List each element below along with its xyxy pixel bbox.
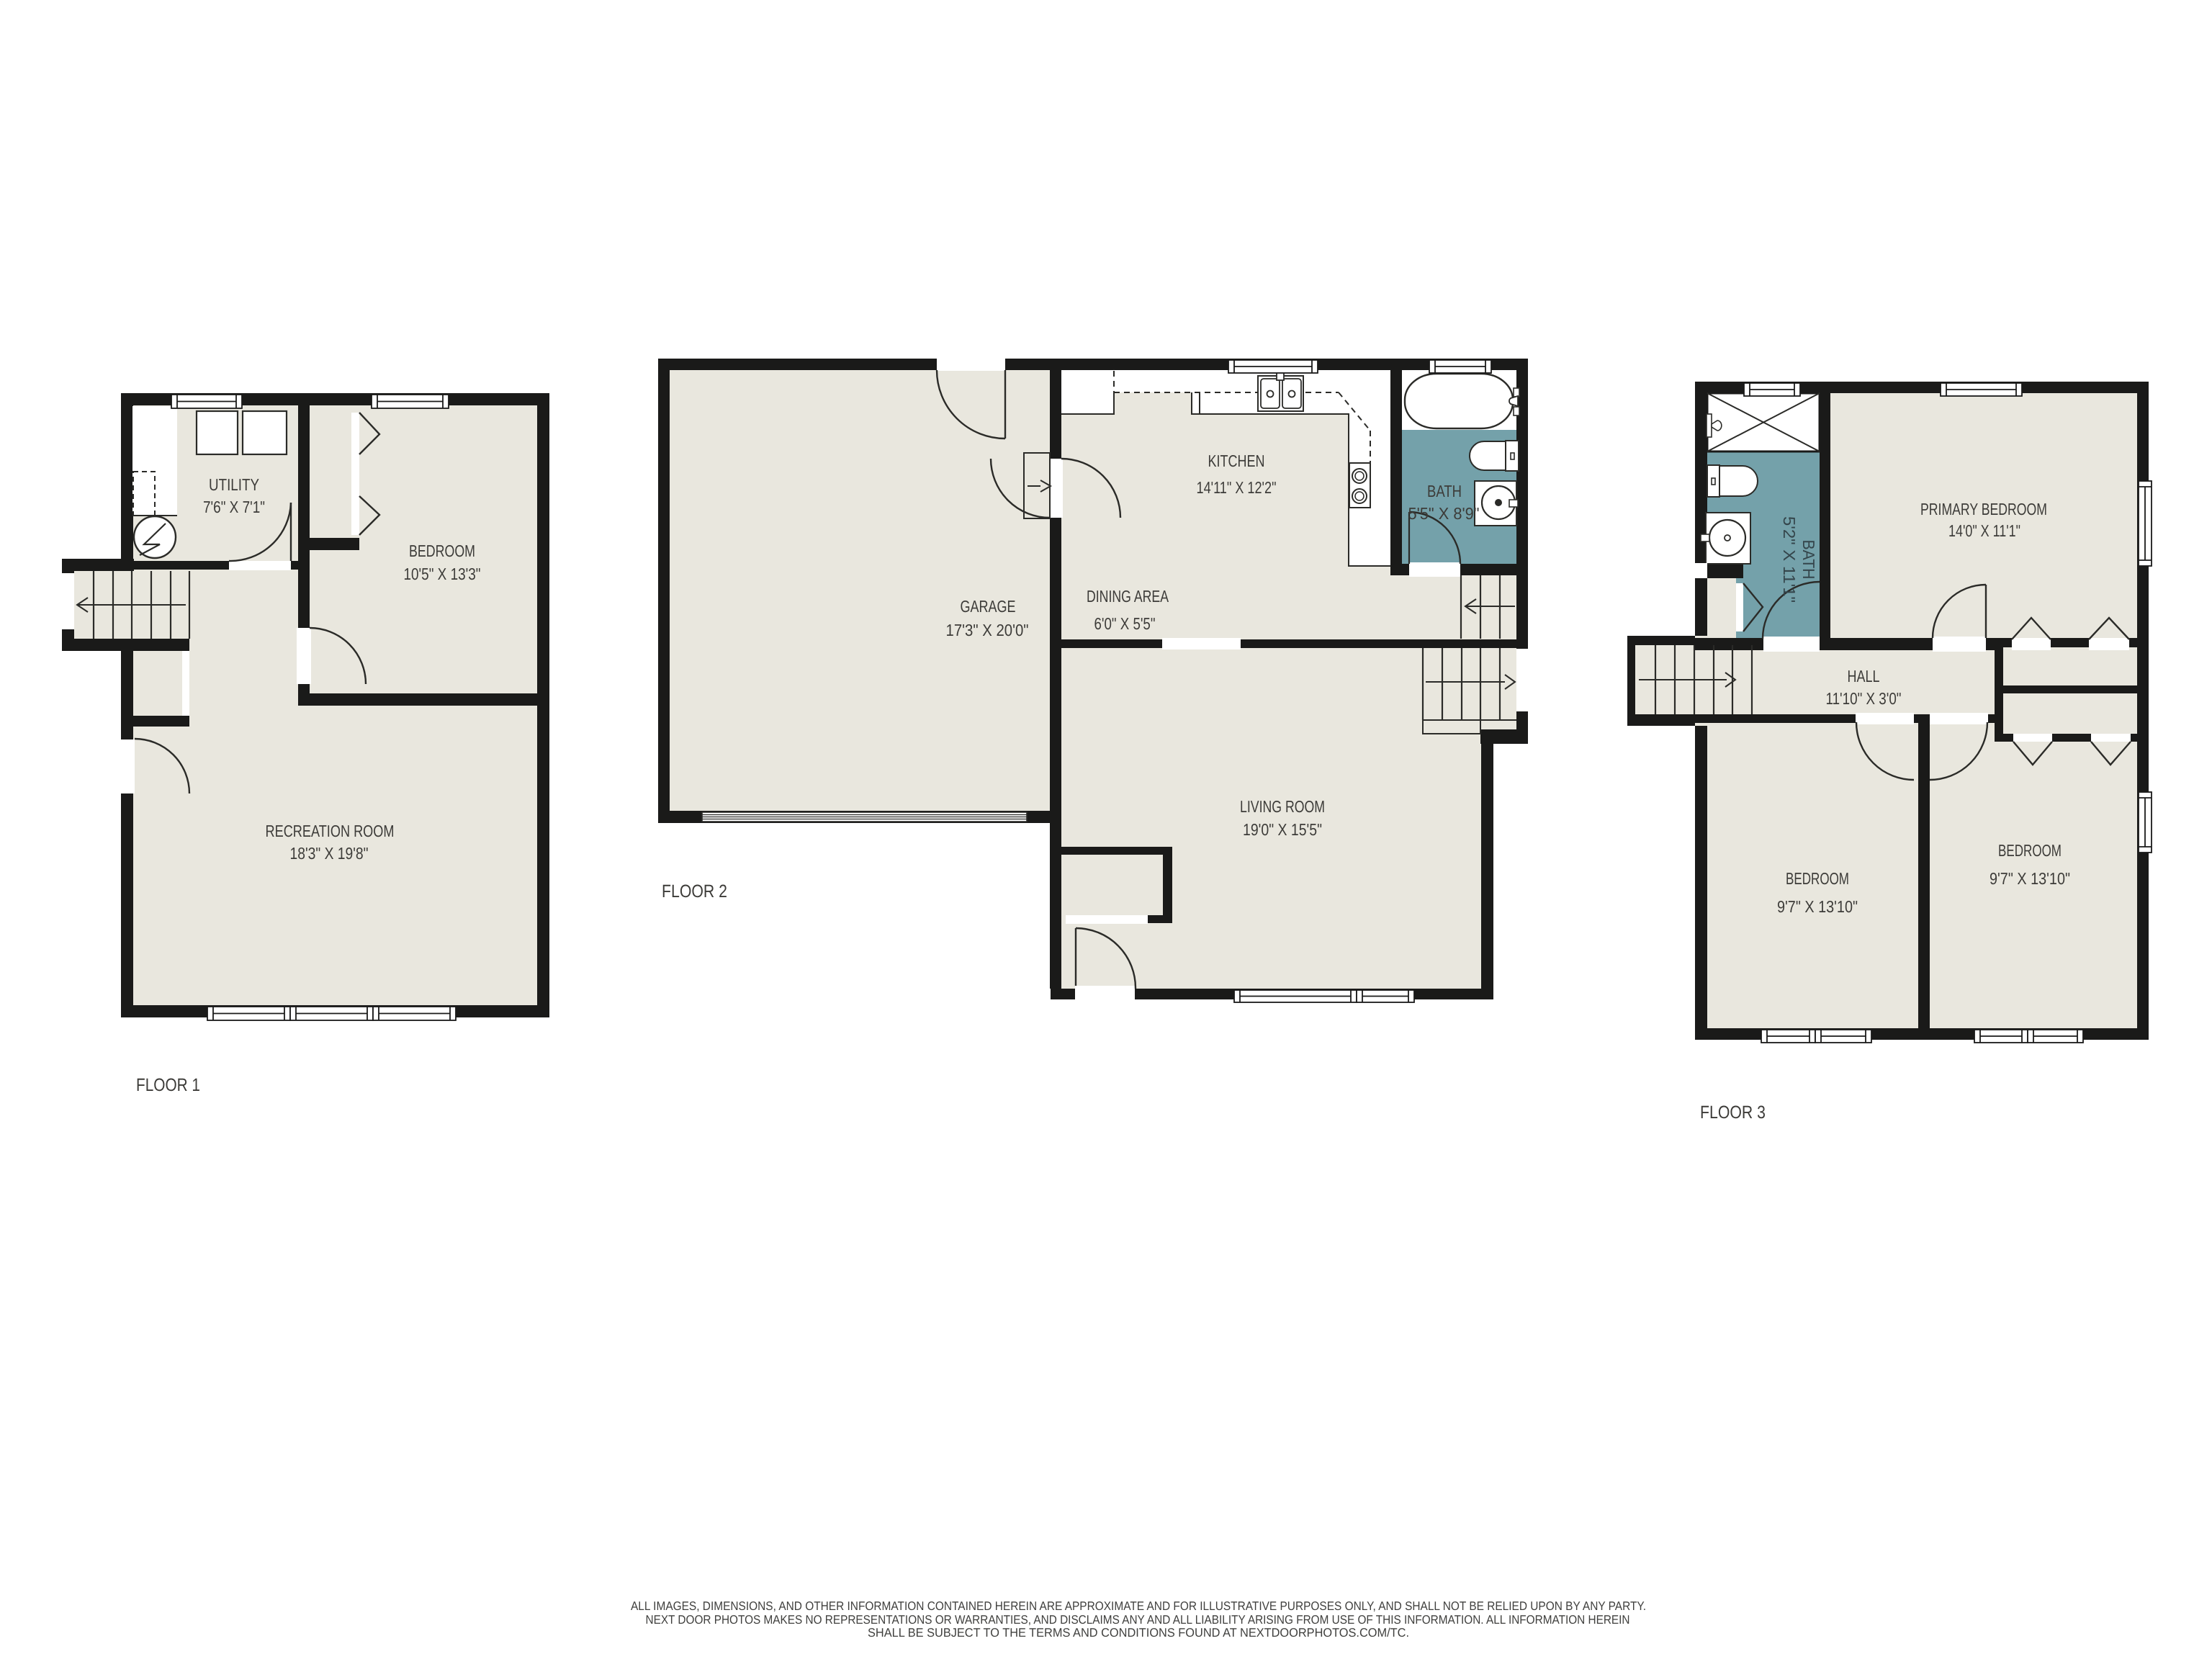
svg-text:BATH: BATH bbox=[1427, 482, 1462, 500]
svg-text:14'0" X 11'1": 14'0" X 11'1" bbox=[1948, 521, 2020, 540]
svg-text:GARAGE: GARAGE bbox=[961, 597, 1016, 616]
svg-text:BATH: BATH bbox=[1799, 540, 1818, 580]
svg-text:BEDROOM: BEDROOM bbox=[409, 541, 475, 560]
svg-text:19'0" X 15'5": 19'0" X 15'5" bbox=[1243, 820, 1322, 839]
svg-text:FLOOR 3: FLOOR 3 bbox=[1700, 1102, 1766, 1123]
svg-text:ALL IMAGES, DIMENSIONS, AND OT: ALL IMAGES, DIMENSIONS, AND OTHER INFORM… bbox=[631, 1599, 1646, 1613]
svg-text:6'0" X 5'5": 6'0" X 5'5" bbox=[1094, 614, 1156, 633]
svg-text:UTILITY: UTILITY bbox=[209, 475, 259, 494]
svg-text:9'7" X 13'10": 9'7" X 13'10" bbox=[1990, 869, 2070, 888]
svg-text:17'3" X 20'0": 17'3" X 20'0" bbox=[946, 621, 1029, 639]
svg-text:FLOOR 1: FLOOR 1 bbox=[136, 1075, 200, 1095]
svg-text:7'6" X 7'1": 7'6" X 7'1" bbox=[203, 498, 265, 516]
svg-text:LIVING ROOM: LIVING ROOM bbox=[1240, 797, 1325, 816]
svg-text:SHALL BE SUBJECT TO THE TERMS: SHALL BE SUBJECT TO THE TERMS AND CONDIT… bbox=[868, 1626, 1409, 1640]
svg-text:10'5" X 13'3": 10'5" X 13'3" bbox=[404, 565, 481, 583]
svg-text:RECREATION ROOM: RECREATION ROOM bbox=[266, 822, 395, 840]
svg-text:BEDROOM: BEDROOM bbox=[1786, 869, 1849, 888]
svg-text:NEXT DOOR PHOTOS MAKES NO REPR: NEXT DOOR PHOTOS MAKES NO REPRESENTATION… bbox=[646, 1613, 1630, 1627]
svg-text:FLOOR 2: FLOOR 2 bbox=[662, 881, 727, 902]
svg-text:BEDROOM: BEDROOM bbox=[1998, 841, 2062, 860]
svg-text:11'10" X 3'0": 11'10" X 3'0" bbox=[1826, 689, 1902, 708]
svg-text:5'5" X 8'9": 5'5" X 8'9" bbox=[1408, 504, 1480, 523]
svg-text:18'3" X 19'8": 18'3" X 19'8" bbox=[290, 844, 369, 863]
svg-text:KITCHEN: KITCHEN bbox=[1208, 451, 1265, 470]
svg-text:9'7" X 13'10": 9'7" X 13'10" bbox=[1777, 897, 1858, 916]
svg-text:14'11" X 12'2": 14'11" X 12'2" bbox=[1197, 478, 1277, 497]
svg-text:PRIMARY BEDROOM: PRIMARY BEDROOM bbox=[1920, 500, 2047, 518]
svg-text:HALL: HALL bbox=[1848, 667, 1880, 685]
svg-text:5'2" X 11'1": 5'2" X 11'1" bbox=[1780, 516, 1799, 603]
svg-text:DINING AREA: DINING AREA bbox=[1087, 587, 1169, 606]
